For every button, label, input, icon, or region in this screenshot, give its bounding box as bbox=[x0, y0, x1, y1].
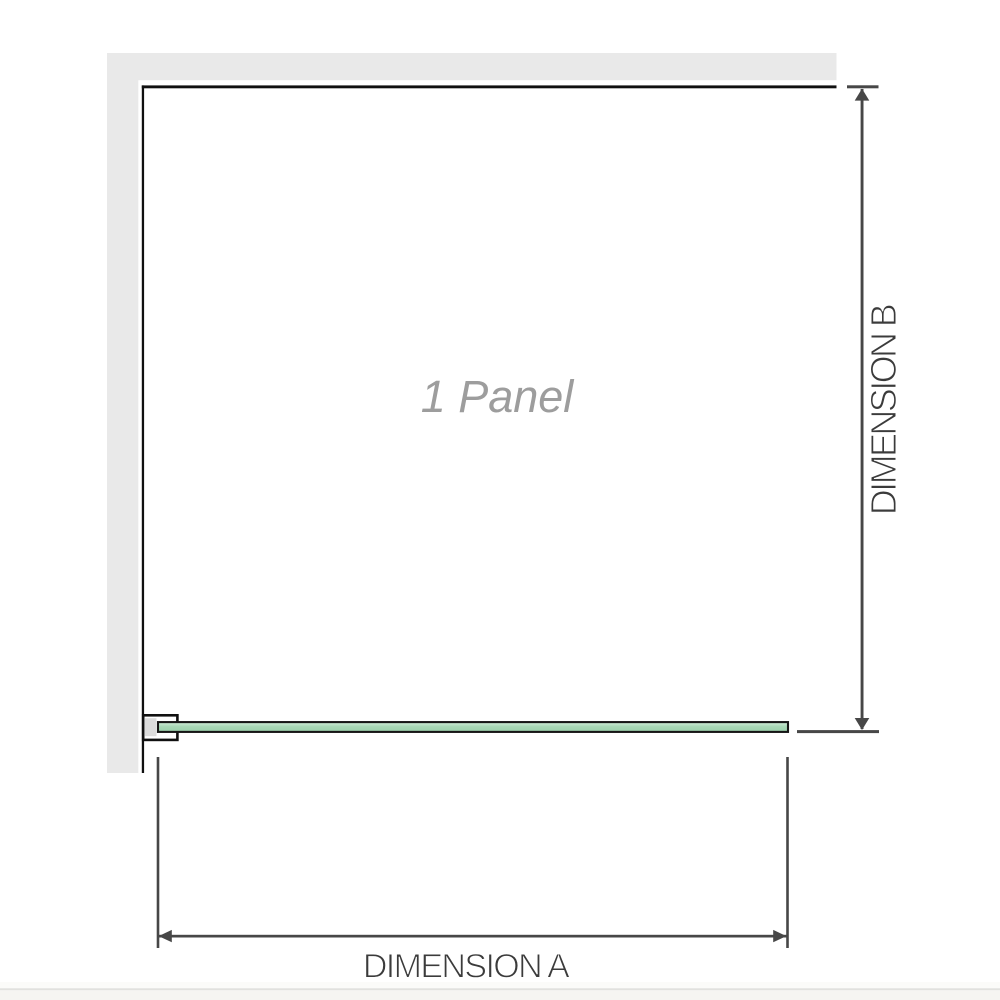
svg-text:DIMENSION B: DIMENSION B bbox=[863, 304, 904, 515]
svg-text:DIMENSION A: DIMENSION A bbox=[363, 948, 570, 986]
svg-text:1 Panel: 1 Panel bbox=[421, 371, 576, 422]
